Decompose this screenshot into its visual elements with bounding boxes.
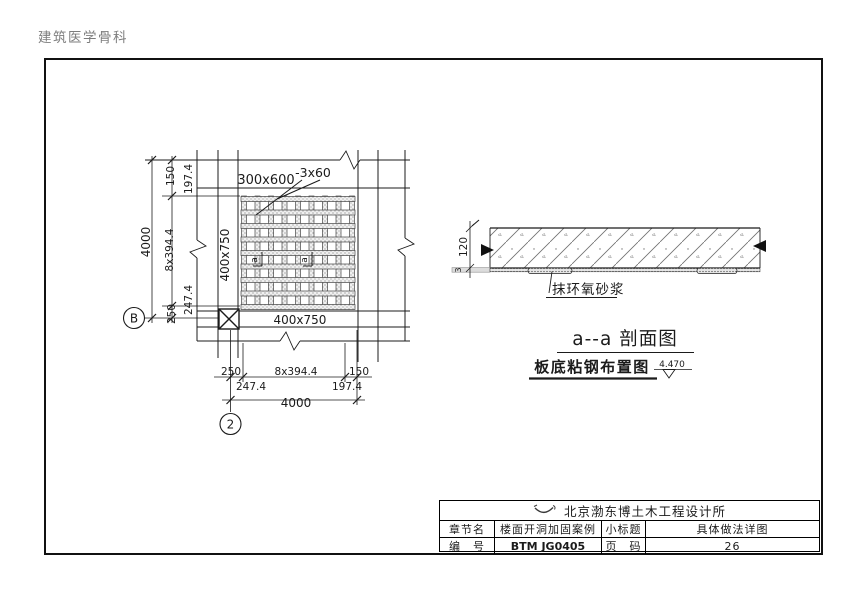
page-value: 26 <box>645 538 819 554</box>
section-title-text: a--a 剖面图 <box>572 329 677 350</box>
dim-bottom-total: 4000 <box>281 396 312 410</box>
title-block: 北京渤东博土木工程设计所 章节名 楼面开洞加固案例 小标题 具体做法详图 编 号… <box>439 500 820 552</box>
title-block-chapter-row: 章节名 楼面开洞加固案例 小标题 具体做法详图 <box>440 521 819 537</box>
dim-bottom-8x394: 8x394.4 <box>275 366 318 378</box>
epoxy-label-text: 抹环氧砂浆 <box>552 282 625 298</box>
company-logo-icon <box>533 504 557 517</box>
dim-left-8x394: 8x394.4 <box>164 228 176 271</box>
dim-bottom-150: 150 <box>349 366 369 378</box>
grid-bubble-2: 2 <box>220 414 241 435</box>
chapter-label: 章节名 <box>440 521 494 537</box>
number-label: 编 号 <box>440 538 494 554</box>
dim-left-total: 4000 <box>139 227 153 258</box>
top-beam-label: 300x600 <box>237 173 294 188</box>
grid-bubble-b-label: B <box>130 312 138 326</box>
subtitle-label: 小标题 <box>601 521 645 537</box>
page-label: 页 码 <box>601 538 645 554</box>
company-name: 北京渤东博土木工程设计所 <box>564 501 726 520</box>
dim-bottom-197: 197.4 <box>332 381 362 393</box>
plate-thickness-dim-text: 3 <box>454 267 463 272</box>
grid-bubble-2-label: 2 <box>227 418 235 432</box>
dim-left-197: 197.4 <box>183 164 195 194</box>
subtitle-value: 具体做法详图 <box>645 521 819 537</box>
elevation-triangle-icon <box>663 370 675 379</box>
column-marker <box>219 309 239 329</box>
elevation-marker: 4.470 <box>654 360 692 378</box>
section-view: 120 3 抹环氧砂浆 a--a 剖面图 板底粘钢布置图 4.470 <box>452 220 766 379</box>
title-block-company-row: 北京渤东博土木工程设计所 <box>440 501 819 521</box>
dim-left-250: 250 <box>166 304 178 324</box>
section-title: a--a 剖面图 <box>557 329 694 353</box>
left-beam-label: 400x750 <box>218 229 232 282</box>
plate-spec-label: -3x60 <box>295 165 331 180</box>
plan-view: a a 300x600 400x750 400x750 -3x60 <box>124 150 415 435</box>
dim-left-247: 247.4 <box>183 285 195 315</box>
bonded-plate-strip <box>452 268 760 274</box>
number-value: BTM JG0405 <box>494 538 601 554</box>
chapter-value: 楼面开洞加固案例 <box>494 521 601 537</box>
dimension-texts-left: 150 197.4 8x394.4 247.4 250 4000 <box>139 164 195 324</box>
epoxy-mortar-label: 抹环氧砂浆 <box>546 272 625 299</box>
title-block-number-row: 编 号 BTM JG0405 页 码 26 <box>440 537 819 554</box>
drawing-page: 建筑医学骨科 <box>0 0 863 604</box>
dim-bottom-250: 250 <box>221 366 241 378</box>
elevation-value: 4.470 <box>659 360 685 370</box>
slab-section <box>490 228 760 268</box>
section-mark-label: a <box>250 257 260 263</box>
plan-title: 板底粘钢布置图 <box>529 358 657 379</box>
section-mark-label: a <box>300 257 310 263</box>
plan-title-text: 板底粘钢布置图 <box>534 358 650 376</box>
dim-left-150: 150 <box>165 166 177 186</box>
title-block-grid: 章节名 楼面开洞加固案例 小标题 具体做法详图 编 号 BTM JG0405 页… <box>440 521 819 554</box>
dim-bottom-247: 247.4 <box>236 381 266 393</box>
thickness-dim-text: 120 <box>458 237 470 257</box>
bottom-beam-label: 400x750 <box>274 313 327 327</box>
